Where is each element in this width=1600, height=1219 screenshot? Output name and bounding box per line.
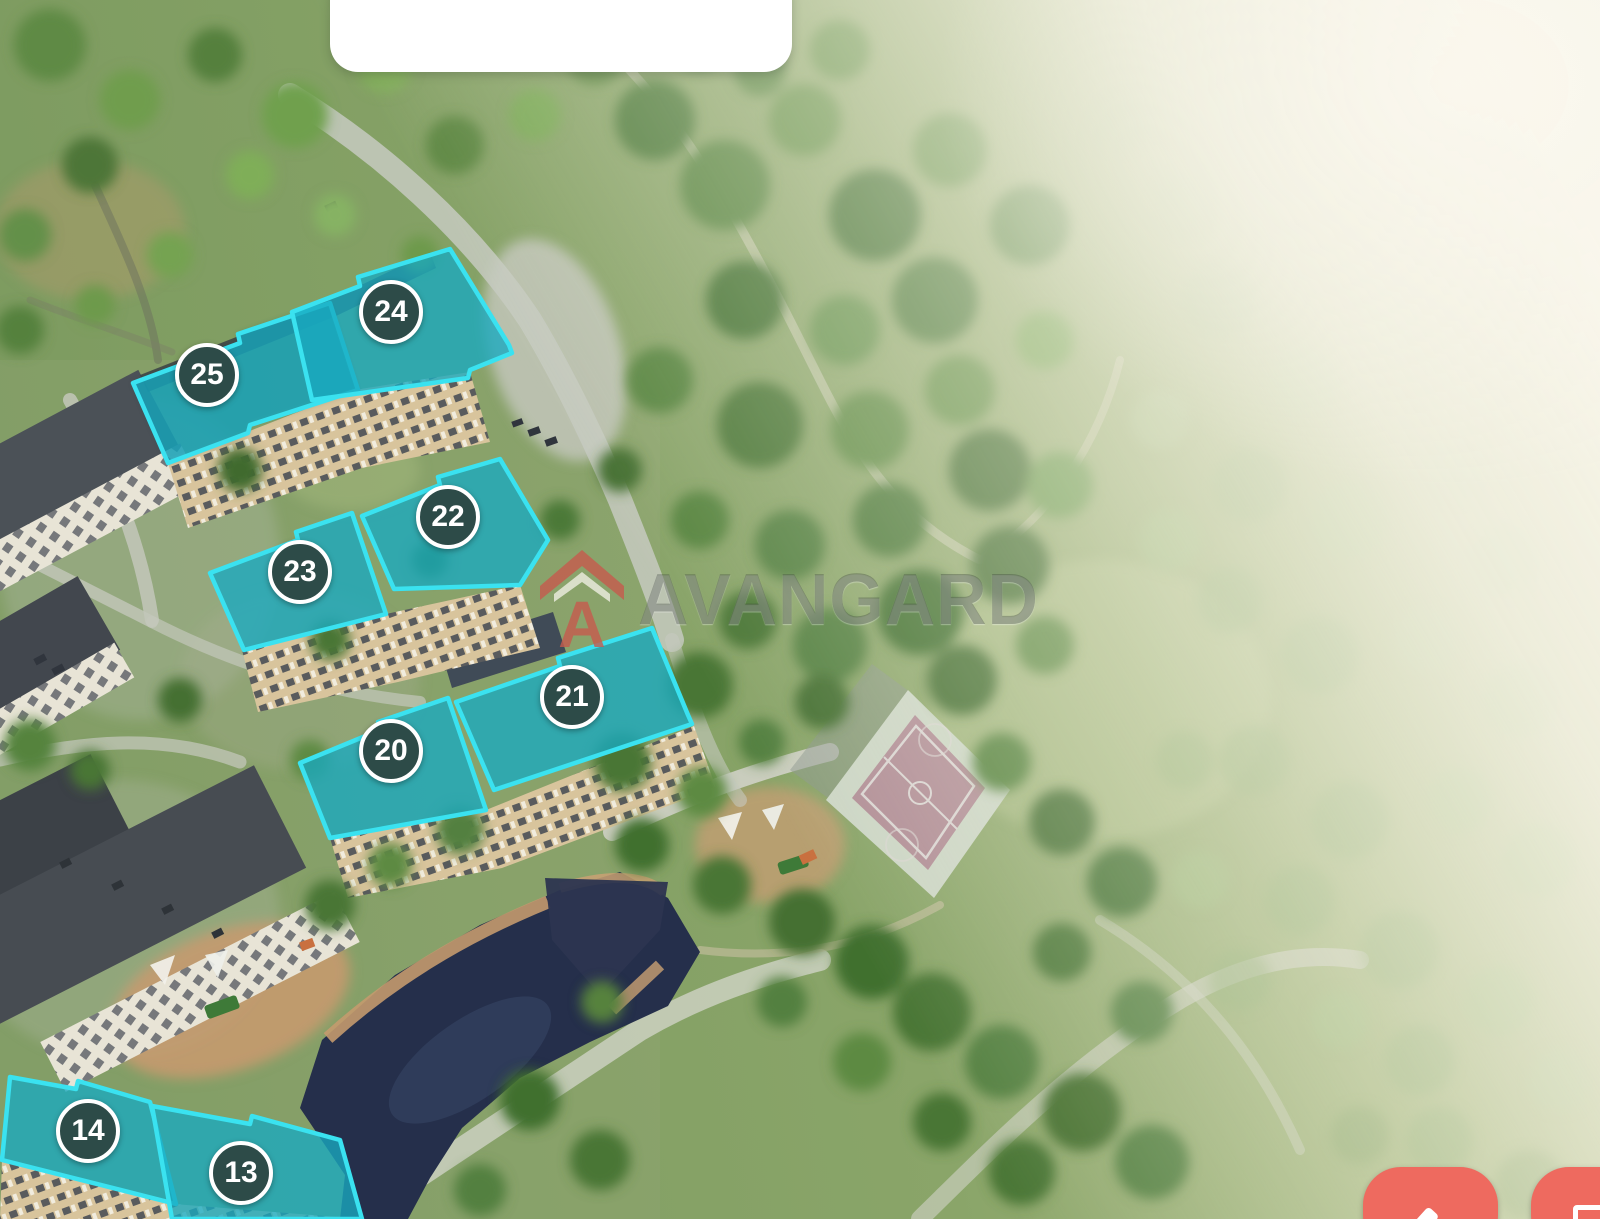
building-marker-23[interactable]: 23 (268, 540, 332, 604)
marker-label: 20 (374, 734, 407, 768)
diagonal-arrow-icon (1406, 1206, 1440, 1219)
building-marker-24[interactable]: 24 (359, 280, 423, 344)
building-outline-icon (1573, 1205, 1600, 1219)
marker-label: 22 (431, 500, 464, 534)
site-plan-render (0, 0, 1600, 1219)
building-marker-14[interactable]: 14 (56, 1099, 120, 1163)
marker-label: 25 (190, 358, 223, 392)
building-marker-25[interactable]: 25 (175, 343, 239, 407)
marker-label: 21 (555, 680, 588, 714)
marker-label: 24 (374, 295, 407, 329)
marker-label: 14 (71, 1114, 104, 1148)
building-marker-21[interactable]: 21 (540, 665, 604, 729)
map-control-button-1[interactable] (1363, 1167, 1498, 1219)
marker-label: 23 (283, 555, 316, 589)
masterplan-view: A AVANGARD 24 25 22 23 21 20 14 13 (0, 0, 1600, 1219)
building-marker-22[interactable]: 22 (416, 485, 480, 549)
building-marker-13[interactable]: 13 (209, 1141, 273, 1205)
marker-label: 13 (224, 1156, 257, 1190)
info-popup (330, 0, 792, 72)
building-marker-20[interactable]: 20 (359, 719, 423, 783)
